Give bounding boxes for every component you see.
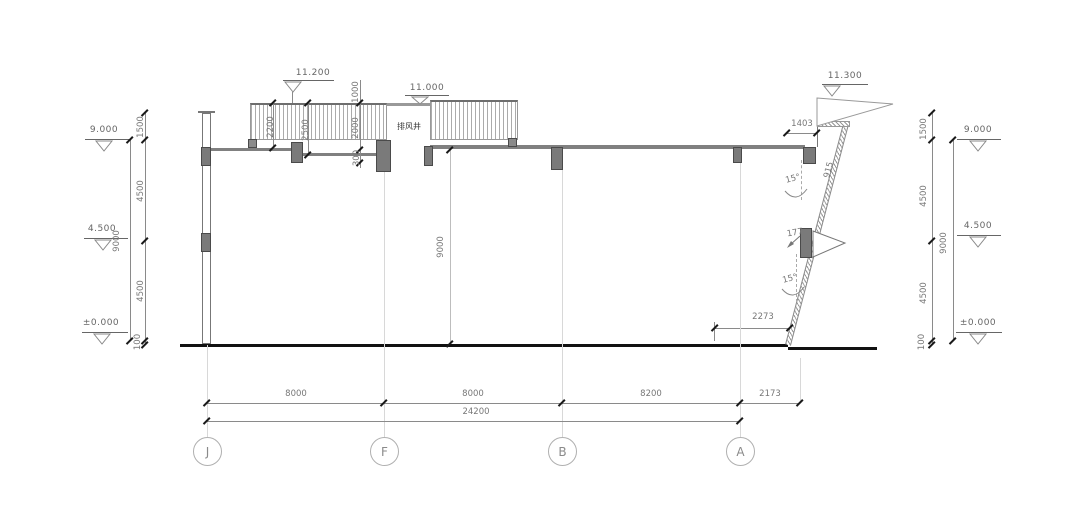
dim-text: 4500 <box>919 271 929 315</box>
parapet-foot-left <box>248 139 257 148</box>
level-marker-icon <box>969 236 987 248</box>
parapet-hatch-right <box>430 100 518 140</box>
dim-text: 8200 <box>621 389 681 399</box>
column-block-5 <box>733 147 742 163</box>
parapet-foot-right <box>508 138 517 147</box>
right-dim-overall-line <box>953 140 954 341</box>
dim-text: 100 <box>133 320 143 364</box>
grid-bubble-B: B <box>548 437 577 466</box>
roof-slab <box>430 145 805 149</box>
level-marker-icon <box>823 85 841 97</box>
level-text-right-9000: 9.000 <box>954 125 1002 136</box>
level-text-11200: 11.200 <box>289 68 337 79</box>
dim-tick <box>949 337 956 344</box>
level-marker-icon <box>411 96 429 105</box>
left-dim-overall-line <box>130 140 131 341</box>
level-marker-icon <box>95 140 113 152</box>
exhaust-shaft-label: 排风井 <box>387 121 431 132</box>
level-text-11300: 11.300 <box>821 71 869 82</box>
grid-bubble-J: J <box>193 437 222 466</box>
ground-line <box>180 344 788 347</box>
right-dim-chain-line <box>932 113 933 345</box>
column-block-3 <box>424 146 433 166</box>
grid-bubble-F: F <box>370 437 399 466</box>
dim-text-1403: 1403 <box>772 119 832 129</box>
level-text-left-9000: 9.000 <box>80 125 128 136</box>
level-marker-icon <box>93 333 111 345</box>
column-block-2 <box>376 140 391 172</box>
dim-text: 2173 <box>740 389 800 399</box>
dim-text: 1500 <box>136 105 146 149</box>
angle-arc-bottom <box>780 286 806 302</box>
roof-beam-left <box>211 148 292 151</box>
grid-bubble-A: A <box>726 437 755 466</box>
grid-line-J <box>207 345 208 437</box>
dim-text: 9000 <box>436 225 446 269</box>
ground-line-right <box>788 347 877 350</box>
canopy-leader <box>786 234 802 250</box>
wall-block-lower <box>201 233 211 252</box>
dim-text: 4500 <box>136 169 146 213</box>
dim-text: 100 <box>917 320 927 364</box>
dim-text: 2500 <box>301 108 311 152</box>
roof-beam-mid <box>303 153 377 156</box>
ext-line-slope-base <box>800 358 801 403</box>
dim-line-2273 <box>714 328 790 329</box>
left-wall-cap <box>198 111 215 113</box>
dim-text: 24200 <box>446 407 506 417</box>
grid-line-B <box>562 170 563 437</box>
dim-text: 2200 <box>266 105 276 149</box>
dim-text: 8000 <box>266 389 326 399</box>
level-leader-11200 <box>292 92 293 103</box>
level-marker-icon <box>94 239 112 251</box>
dim-text: 8000 <box>443 389 503 399</box>
bottom-dim-line-2 <box>207 421 740 422</box>
angle-arc-top <box>783 188 809 204</box>
column-block-4 <box>551 147 563 170</box>
dim-text: 1500 <box>919 107 929 151</box>
level-marker-icon <box>284 81 302 93</box>
bottom-dim-line-1 <box>207 403 800 404</box>
wall-block-upper <box>201 147 211 166</box>
level-text-11000: 11.000 <box>403 83 451 94</box>
dim-text-2273: 2273 <box>733 312 793 322</box>
dim-text: 4500 <box>136 269 146 313</box>
section-drawing: 排风井 11.200 11.000 11.300 9.000 4.500 ±0.… <box>0 0 1080 530</box>
grid-line-F <box>384 172 385 437</box>
level-marker-icon <box>969 140 987 152</box>
interior-height-line <box>450 150 451 344</box>
level-text-right-0000: ±0.000 <box>954 318 1002 329</box>
dim-text: 4500 <box>919 174 929 218</box>
level-text-right-4500: 4.500 <box>954 221 1002 232</box>
column-block-6 <box>803 147 816 164</box>
dim-text: 9000 <box>939 221 949 265</box>
level-marker-icon <box>969 333 987 345</box>
level-text-left-0000: ±0.000 <box>77 318 125 329</box>
dim-text: 300 <box>352 136 362 180</box>
dim-tick <box>796 399 803 406</box>
dim-text: 9000 <box>112 219 122 263</box>
